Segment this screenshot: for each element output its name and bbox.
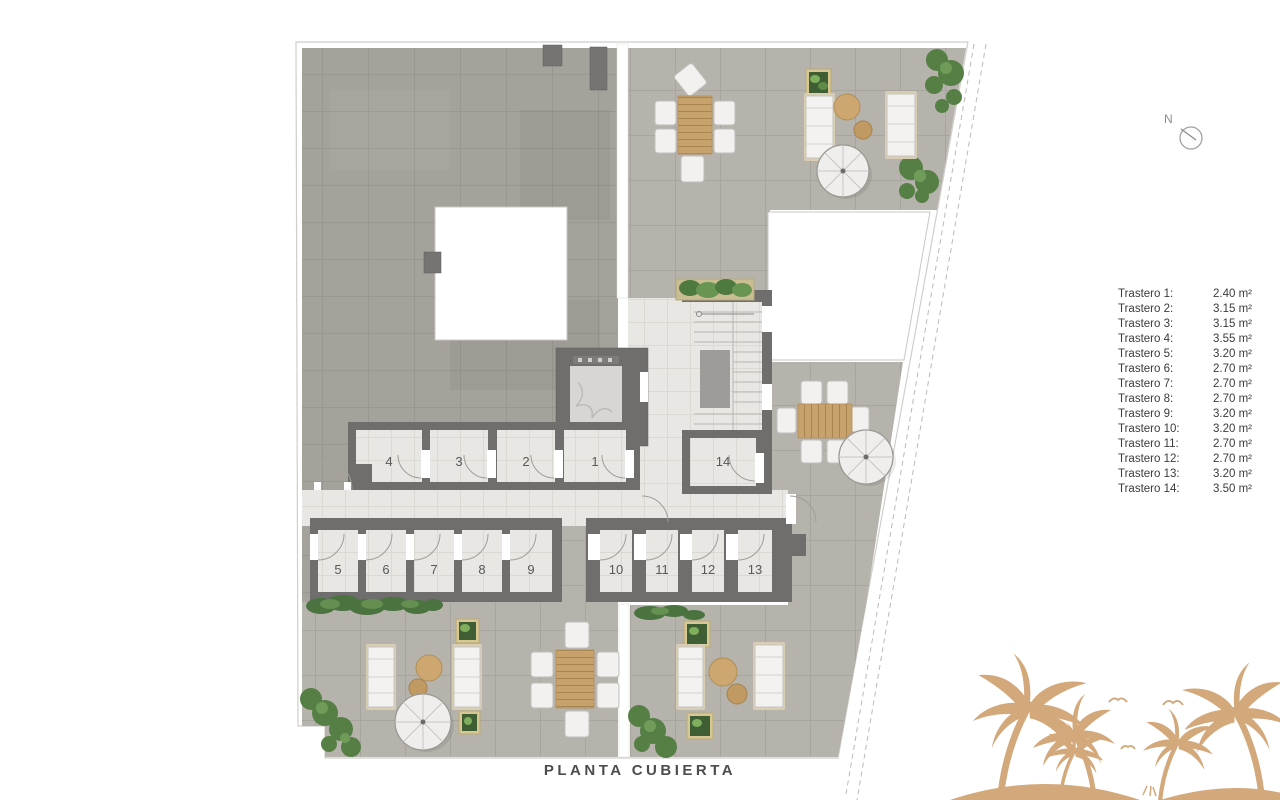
- room-label-9: 9: [527, 562, 534, 577]
- room-label-12: 12: [701, 562, 715, 577]
- legend-row: Trastero 6:2.70 m²: [1118, 362, 1252, 377]
- room-label-1: 1: [591, 454, 598, 469]
- room-label-14: 14: [716, 454, 730, 469]
- north-label: N: [1164, 112, 1173, 126]
- room-label-11: 11: [655, 562, 669, 577]
- room-label-7: 7: [430, 562, 437, 577]
- legend-row: Trastero 5:3.20 m²: [1118, 347, 1252, 362]
- legend-row: Trastero 14:3.50 m²: [1118, 482, 1252, 497]
- legend-row: Trastero 7:2.70 m²: [1118, 377, 1252, 392]
- area-legend: Trastero 1:2.40 m² Trastero 2:3.15 m² Tr…: [1118, 287, 1252, 497]
- room-label-3: 3: [455, 454, 462, 469]
- legend-row: Trastero 12:2.70 m²: [1118, 452, 1252, 467]
- room-label-2: 2: [522, 454, 529, 469]
- storage-bottom-left-group: [310, 518, 562, 602]
- legend-row: Trastero 11:2.70 m²: [1118, 437, 1252, 452]
- room-label-8: 8: [478, 562, 485, 577]
- legend-row: Trastero 4:3.55 m²: [1118, 332, 1252, 347]
- staircase: [692, 300, 768, 440]
- room-label-6: 6: [382, 562, 389, 577]
- legend-row: Trastero 1:2.40 m²: [1118, 287, 1252, 302]
- legend-row: Trastero 8:2.70 m²: [1118, 392, 1252, 407]
- floor-plan: 4 3 2 1 14 5 6 7 8 9 10 11 12 13: [0, 0, 1280, 800]
- room-label-13: 13: [748, 562, 762, 577]
- legend-row: Trastero 13:3.20 m²: [1118, 467, 1252, 482]
- legend-row: Trastero 3:3.15 m²: [1118, 317, 1252, 332]
- core-planter: [676, 279, 754, 300]
- room-label-4: 4: [385, 454, 392, 469]
- legend-row: Trastero 2:3.15 m²: [1118, 302, 1252, 317]
- north-indicator: N: [1164, 112, 1202, 149]
- legend-row: Trastero 10:3.20 m²: [1118, 422, 1252, 437]
- page-title: PLANTA CUBIERTA: [0, 762, 1280, 779]
- room-label-5: 5: [334, 562, 341, 577]
- room-label-10: 10: [609, 562, 623, 577]
- legend-row: Trastero 9:3.20 m²: [1118, 407, 1252, 422]
